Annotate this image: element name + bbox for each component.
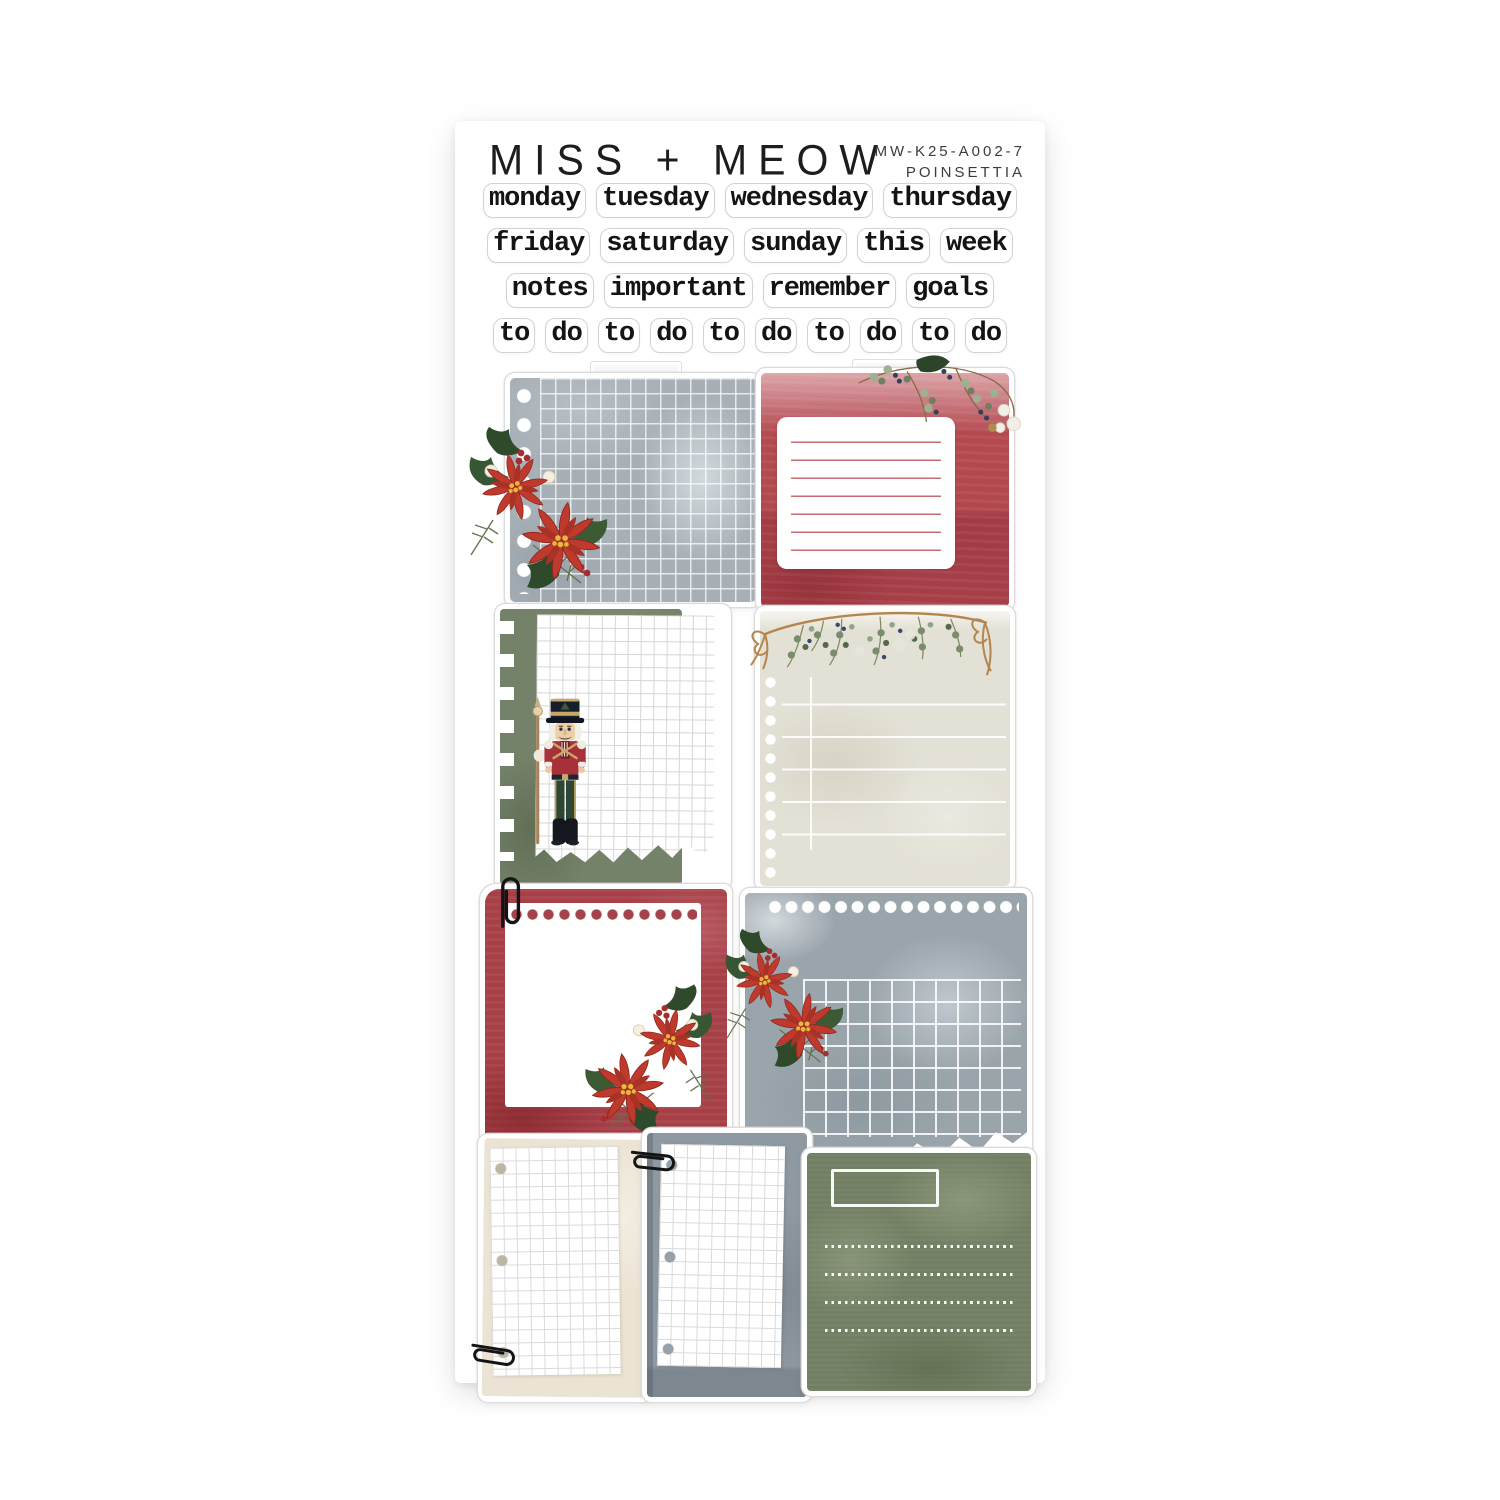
word-sticker-goals: goals [906,273,994,308]
sticker-green-label-note [802,1148,1036,1396]
word-sticker-sunday: sunday [744,228,847,263]
word-sticker-row-4: to do to do to do to do to do [455,318,1045,355]
word-sticker-to-3: to [703,318,745,353]
word-sticker-week: week [940,228,1013,263]
dotted-line [825,1245,1015,1248]
product-collection: POINSETTIA [875,162,1025,183]
punch-holes [494,1162,511,1366]
sticker-gray-grid-note [505,373,761,607]
word-sticker-saturday: saturday [600,228,734,263]
word-sticker-to-1: to [493,318,535,353]
garland-icon [749,594,1001,706]
word-sticker-notes: notes [506,273,594,308]
spiral-notches [497,621,514,861]
word-sticker-to-5: to [912,318,954,353]
paperclip-icon [627,1142,680,1179]
product-sku: MW-K25-A002-7 [875,141,1025,162]
word-sticker-do-4: do [860,318,902,353]
word-stickers: monday tuesday wednesday thursday friday… [455,183,1045,363]
paperclip-icon [467,1335,521,1374]
word-sticker-thursday: thursday [883,183,1017,218]
word-sticker-do-2: do [650,318,692,353]
sticker-sheet: MISS + MEOW MW-K25-A002-7 POINSETTIA mon… [455,121,1045,1383]
product-code-block: MW-K25-A002-7 POINSETTIA [875,141,1025,183]
poinsettia-icon [720,916,848,1088]
word-sticker-to-4: to [807,318,849,353]
word-sticker-row-1: monday tuesday wednesday thursday [455,183,1045,220]
word-sticker-do-3: do [755,318,797,353]
word-sticker-friday: friday [487,228,590,263]
green-note-paper [500,609,726,885]
dotted-line [825,1301,1015,1304]
sticker-green-nutcracker-note [495,604,731,890]
punch-holes [769,901,1019,914]
green-note-paper [807,1153,1031,1391]
word-sticker-monday: monday [483,183,586,218]
word-sticker-do-5: do [965,318,1007,353]
greenery-sprig-icon [848,354,1034,480]
label-box [831,1169,939,1207]
dotted-line [825,1273,1015,1276]
punch-holes [765,677,777,878]
word-sticker-remember: remember [763,273,897,308]
sticker-garland-note [755,606,1015,891]
word-sticker-wednesday: wednesday [725,183,874,218]
word-sticker-do-1: do [545,318,587,353]
sticker-red-frame-note [480,884,732,1156]
word-sticker-to-2: to [598,318,640,353]
word-sticker-row-2: friday saturday sunday this week [455,228,1045,265]
brand-title: MISS + MEOW [489,136,889,185]
poinsettia-icon [463,425,613,600]
word-sticker-tuesday: tuesday [596,183,714,218]
nutcracker-icon [530,693,596,849]
sticker-gray-grid-paper [642,1128,812,1402]
punch-holes [661,1158,679,1356]
word-sticker-important: important [604,273,753,308]
paperclip-icon [492,872,528,930]
dotted-line [825,1329,1015,1332]
word-sticker-this: this [857,228,930,263]
sticker-red-lined-note [756,368,1014,612]
poinsettia-icon [580,982,718,1144]
perforation-dots [511,909,697,920]
word-sticker-row-3: notes important remember goals [455,273,1045,310]
